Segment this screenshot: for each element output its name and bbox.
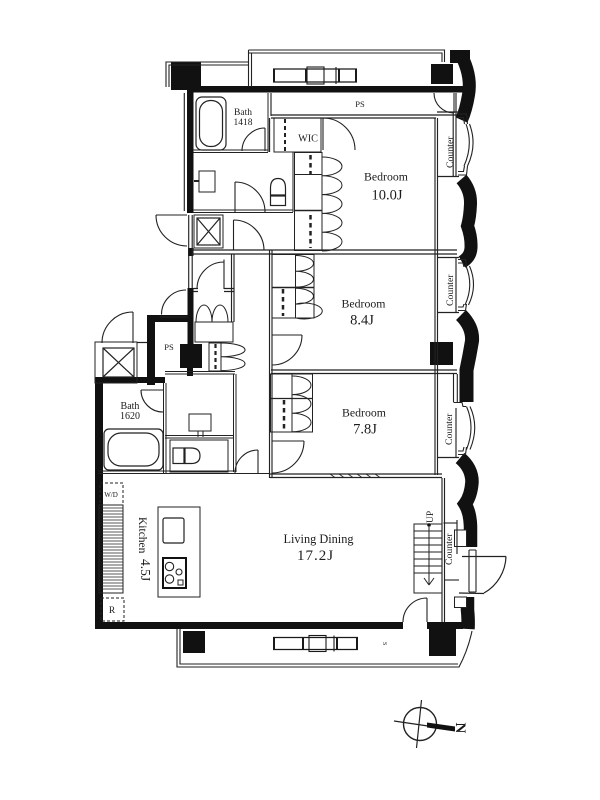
svg-text:PS: PS	[355, 99, 365, 109]
svg-text:Counter: Counter	[444, 533, 455, 565]
svg-text:Bath: Bath	[234, 108, 252, 118]
svg-text:Kitchen: Kitchen	[136, 517, 148, 554]
svg-text:Bedroom: Bedroom	[342, 297, 386, 311]
svg-text:1620: 1620	[120, 411, 140, 422]
svg-text:17.2J: 17.2J	[297, 548, 334, 564]
svg-text:R: R	[109, 606, 116, 616]
svg-text:Counter: Counter	[445, 136, 456, 168]
svg-text:WIC: WIC	[298, 134, 318, 145]
svg-text:1418: 1418	[234, 118, 253, 128]
svg-text:Bedroom: Bedroom	[364, 170, 408, 184]
svg-text:UP: UP	[426, 511, 436, 523]
svg-text:Counter: Counter	[444, 413, 455, 445]
svg-text:Living Dining: Living Dining	[283, 532, 353, 546]
svg-text:Bedroom: Bedroom	[342, 406, 386, 420]
svg-text:PS: PS	[164, 342, 174, 352]
svg-text:Counter: Counter	[445, 274, 456, 306]
svg-text:W/D: W/D	[104, 491, 118, 499]
svg-text:10.0J: 10.0J	[371, 188, 402, 204]
svg-text:7.8J: 7.8J	[353, 422, 377, 438]
svg-text:4.5J: 4.5J	[138, 559, 153, 581]
svg-text:8.4J: 8.4J	[350, 313, 374, 329]
svg-text:S: S	[381, 642, 387, 645]
